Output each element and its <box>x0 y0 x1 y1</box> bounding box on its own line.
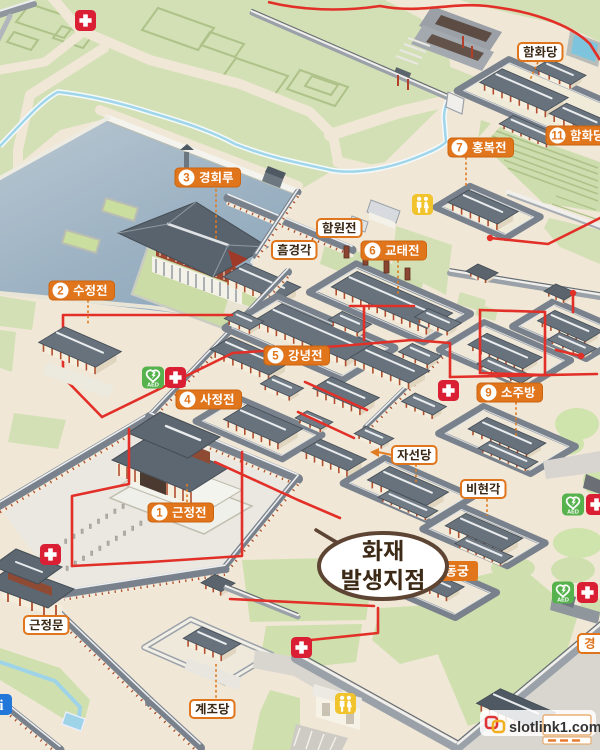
svg-text:AED: AED <box>147 382 159 388</box>
svg-text:slotlink1.com: slotlink1.com <box>509 720 600 736</box>
svg-text:7: 7 <box>456 143 462 155</box>
svg-text:4: 4 <box>184 395 191 407</box>
svg-text:5: 5 <box>272 351 279 363</box>
svg-text:3: 3 <box>183 173 189 185</box>
svg-text:AED: AED <box>567 509 579 515</box>
svg-text:11: 11 <box>551 131 564 143</box>
svg-text:AED: AED <box>557 597 569 603</box>
svg-text:9: 9 <box>485 388 491 400</box>
svg-text:1: 1 <box>156 508 163 520</box>
svg-text:2: 2 <box>57 286 63 298</box>
svg-text:i: i <box>0 698 4 714</box>
svg-text:6: 6 <box>369 246 375 258</box>
